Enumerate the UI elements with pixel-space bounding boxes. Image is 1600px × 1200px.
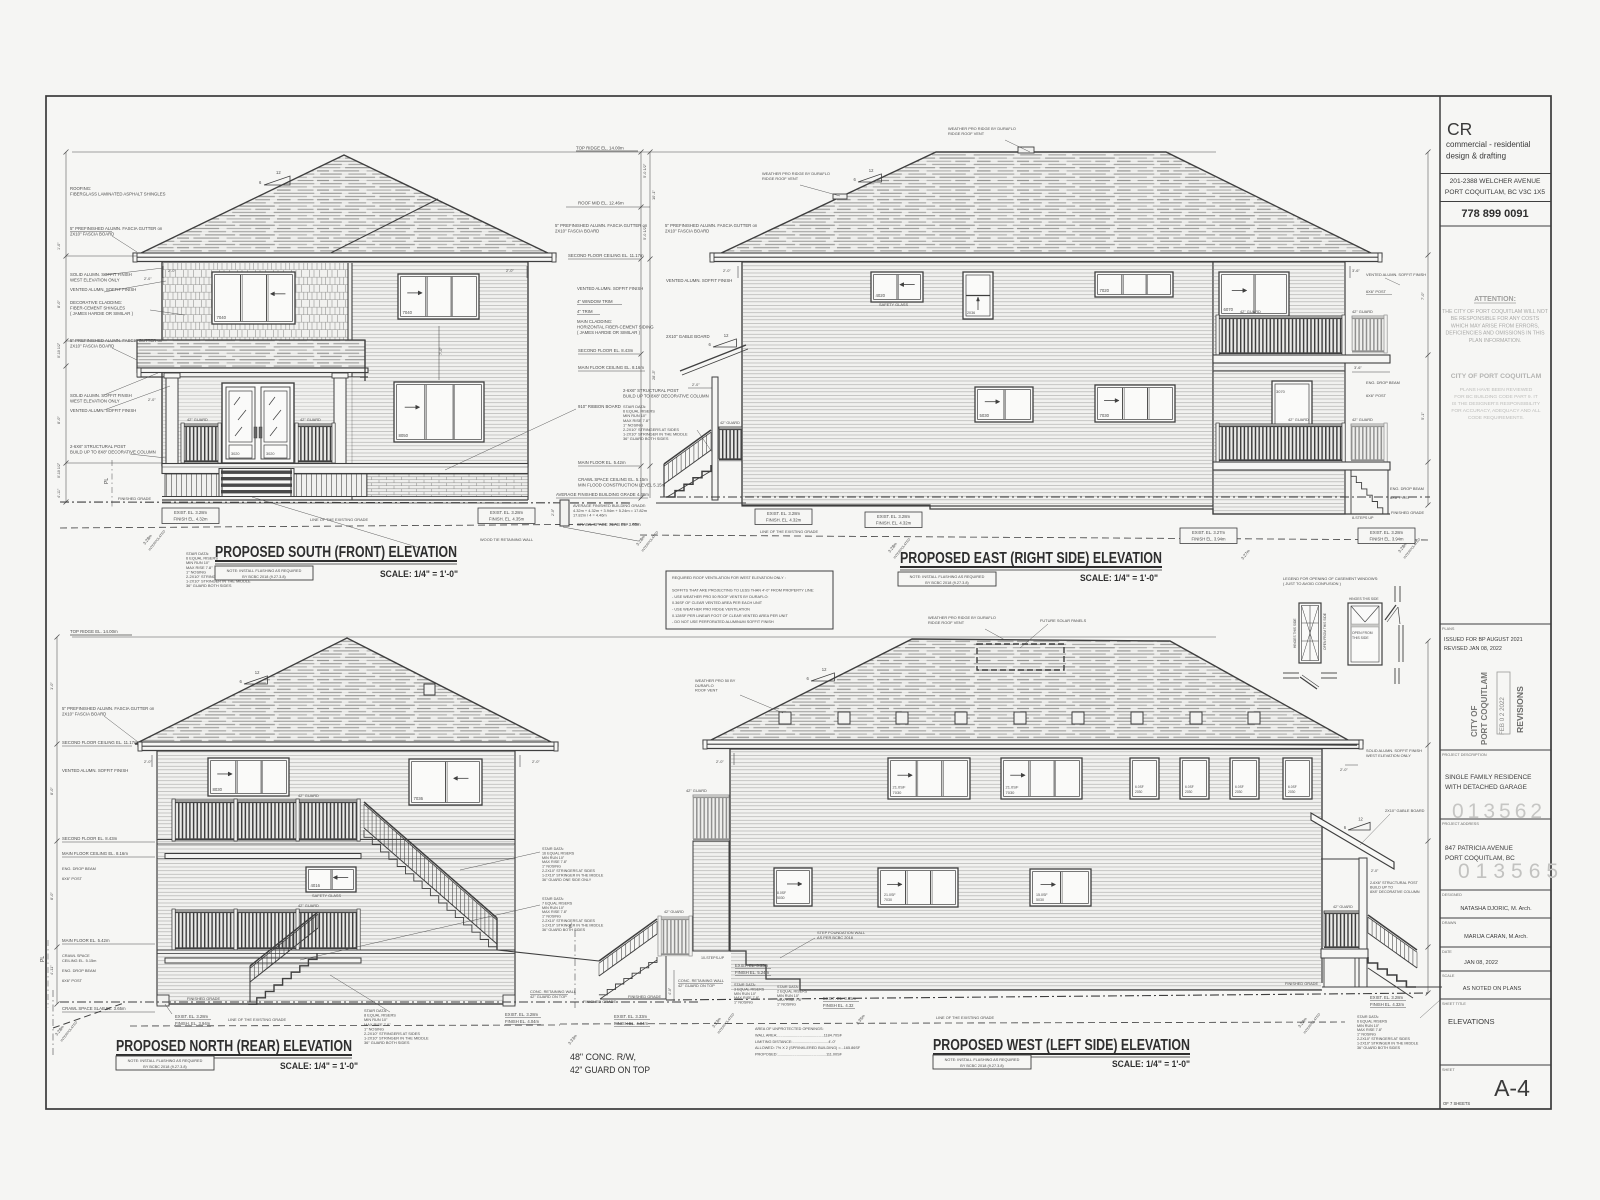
svg-text:PLANS HAVE BEEN REVIEWED: PLANS HAVE BEEN REVIEWED	[1460, 387, 1533, 393]
svg-text:REVISIONS: REVISIONS	[1515, 686, 1525, 733]
svg-text:17.82m / 4 = 4.46m: 17.82m / 4 = 4.46m	[573, 513, 607, 518]
svg-text:8050: 8050	[399, 433, 409, 438]
svg-text:NOTE: INSTALL FLASHING AS REQU: NOTE: INSTALL FLASHING AS REQUIRED	[227, 569, 302, 573]
svg-text:EXIST. EL. 3.28m: EXIST. EL. 3.28m	[767, 511, 801, 516]
svg-text:SCALE: 1/4" = 1'-0": SCALE: 1/4" = 1'-0"	[280, 1061, 358, 1072]
svg-text:FOR BC BUILDING CODE PART 9. I: FOR BC BUILDING CODE PART 9. IT	[1454, 394, 1537, 400]
svg-text:2'-0": 2'-0"	[1340, 767, 1348, 772]
svg-text:PROPOSED SOUTH (FRONT) ELEVATI: PROPOSED SOUTH (FRONT) ELEVATION	[215, 544, 457, 561]
svg-text:DECORATIVE CLADDING:: DECORATIVE CLADDING:	[70, 300, 122, 305]
svg-text:4" TRIM: 4" TRIM	[577, 309, 593, 314]
svg-text:EXIST. EL. 3.28m: EXIST. EL. 3.28m	[174, 510, 208, 515]
svg-text:WITH DETACHED GARAGE: WITH DETACHED GARAGE	[1445, 784, 1527, 791]
svg-text:OPEN FROM: OPEN FROM	[1352, 631, 1373, 635]
svg-text:36" GUARD BOTH SIDES: 36" GUARD BOTH SIDES	[1357, 1046, 1401, 1050]
svg-text:7030: 7030	[1100, 413, 1110, 418]
svg-text:FINISH. EL. 4.32m: FINISH. EL. 4.32m	[766, 518, 802, 523]
svg-text:EXIST. EL. 3.35m: EXIST. EL. 3.35m	[823, 996, 857, 1001]
svg-text:0'-10 1/2": 0'-10 1/2"	[57, 462, 61, 478]
svg-text:AVERAGE FINISHED BUILDING GRAD: AVERAGE FINISHED BUILDING GRADE 4.46m	[556, 492, 649, 497]
svg-text:2'-0": 2'-0"	[144, 759, 152, 764]
svg-text:42" GUARD: 42" GUARD	[1288, 417, 1309, 422]
svg-text:SECOND FLOOR CEILING EL. 11.17: SECOND FLOOR CEILING EL. 11.17m	[62, 740, 138, 745]
svg-text:FUTURE SOLAR PANELS: FUTURE SOLAR PANELS	[1040, 618, 1087, 623]
svg-text:36" GUARD ONE SIDE ONLY: 36" GUARD ONE SIDE ONLY	[542, 878, 592, 882]
svg-text:2-6X6" STRUCTURAL POST: 2-6X6" STRUCTURAL POST	[70, 444, 126, 449]
svg-text:5" PREFINISHED ALUMN. FASCIA G: 5" PREFINISHED ALUMN. FASCIA GUTTER on	[70, 226, 163, 231]
svg-text:VENTED ALUMN. SOFFIT FINISH: VENTED ALUMN. SOFFIT FINISH	[666, 278, 732, 283]
svg-text:28'-3": 28'-3"	[651, 369, 656, 380]
svg-text:7040: 7040	[217, 315, 227, 320]
svg-text:REVISED JAN 08, 2022: REVISED JAN 08, 2022	[1444, 646, 1502, 652]
svg-text:3'-6": 3'-6"	[1354, 365, 1362, 370]
svg-text:1-2X10" STRINGER IN THE MIDDLE: 1-2X10" STRINGER IN THE MIDDLE	[1357, 1041, 1419, 1045]
svg-text:2036: 2036	[967, 311, 975, 315]
svg-text:ELEVATIONS: ELEVATIONS	[1448, 1017, 1495, 1026]
svg-text:SAFETY GLASS: SAFETY GLASS	[879, 302, 909, 307]
svg-text:BUILD UP TO: BUILD UP TO	[1370, 886, 1393, 890]
svg-text:36" GUARD BOTH SIDES: 36" GUARD BOTH SIDES	[542, 928, 586, 932]
svg-text:3020: 3020	[231, 452, 239, 456]
svg-text:8X8" DECORATIVE COLUMN: 8X8" DECORATIVE COLUMN	[1370, 890, 1420, 894]
svg-text:AS NOTED ON PLANS: AS NOTED ON PLANS	[1463, 986, 1522, 992]
svg-text:WOOD TIE RETAINING WALL: WOOD TIE RETAINING WALL	[480, 537, 534, 542]
svg-text:910" RIBBON BOARD: 910" RIBBON BOARD	[578, 404, 621, 409]
svg-text:FINISH. EL. 4.32m: FINISH. EL. 4.32m	[876, 521, 912, 526]
svg-text:2'-0": 2'-0"	[148, 398, 156, 402]
svg-text:2'-0": 2'-0"	[532, 759, 540, 764]
svg-text:42" GUARD: 42" GUARD	[298, 793, 319, 798]
svg-text:FINISH. EL. 3.94m: FINISH. EL. 3.94m	[175, 1021, 211, 1026]
svg-text:7036: 7036	[414, 796, 424, 801]
svg-text:4'-0": 4'-0"	[668, 987, 672, 995]
svg-text:2'-0": 2'-0"	[692, 383, 700, 387]
svg-text:LINE OF THE EXISTING GRADE: LINE OF THE EXISTING GRADE	[310, 517, 368, 522]
svg-text:AS PER BCBC 2018: AS PER BCBC 2018	[817, 935, 853, 940]
svg-text:2'-0": 2'-0"	[716, 759, 724, 764]
svg-text:THIS SIDE: THIS SIDE	[1352, 636, 1369, 640]
svg-text:ALLOWED: 7% X 2 (SPRINKLERED B: ALLOWED: 7% X 2 (SPRINKLERED BUILDING) =…	[755, 1046, 861, 1050]
svg-text:DESIGNED: DESIGNED	[1442, 893, 1462, 897]
svg-text:42" GUARD: 42" GUARD	[1352, 309, 1373, 314]
svg-text:MAX RISE 7.8": MAX RISE 7.8"	[542, 910, 568, 914]
svg-text:DATE: DATE	[1442, 950, 1452, 954]
svg-text:15.0SF: 15.0SF	[1036, 893, 1048, 897]
svg-text:MIN RUN 10": MIN RUN 10"	[734, 992, 757, 996]
svg-text:12: 12	[869, 168, 874, 173]
svg-text:5'-0 1/2": 5'-0 1/2"	[642, 163, 647, 178]
svg-text:6.0SF: 6.0SF	[1185, 785, 1194, 789]
svg-text:42" GUARD ON TOP: 42" GUARD ON TOP	[570, 1065, 650, 1075]
svg-text:PROPOSED EAST (RIGHT SIDE) ELE: PROPOSED EAST (RIGHT SIDE) ELEVATION	[900, 550, 1162, 567]
svg-text:LINE OF THE EXISTING GRADE: LINE OF THE EXISTING GRADE	[228, 1017, 286, 1022]
svg-text:FINISHED GRADE: FINISHED GRADE	[187, 996, 220, 1001]
svg-text:2-2X10" STRINGERS AT SIDES: 2-2X10" STRINGERS AT SIDES	[1357, 1037, 1411, 1041]
svg-text:ENG. DROP BEAM: ENG. DROP BEAM	[62, 968, 96, 973]
svg-text:10-STEPS-UP: 10-STEPS-UP	[701, 956, 725, 960]
svg-text:1" NOSING: 1" NOSING	[542, 915, 561, 919]
svg-text:VENTED ALUMN. SOFFIT FINISH: VENTED ALUMN. SOFFIT FINISH	[577, 286, 643, 291]
svg-text:PLANS: PLANS	[1442, 627, 1455, 631]
svg-text:WEST ELEVATION ONLY: WEST ELEVATION ONLY	[70, 277, 120, 282]
svg-text:FINISH EL. 3.94m: FINISH EL. 3.94m	[1192, 537, 1226, 542]
svg-text:8-STEPS UP: 8-STEPS UP	[1352, 516, 1374, 520]
svg-text:MIN FLOOD CONSTRUCTION LEVEL 5: MIN FLOOD CONSTRUCTION LEVEL 5.15m	[578, 482, 666, 487]
svg-text:- USE WEATHER PRO RIDGE VENT: - USE WEATHER PRO RIDGE VENTILATION	[672, 608, 750, 612]
svg-text:013565: 013565	[1458, 860, 1564, 883]
svg-text:CEILING EL. 5.15m: CEILING EL. 5.15m	[62, 958, 96, 963]
svg-text:ENG. DROP BEAM: ENG. DROP BEAM	[1366, 380, 1400, 385]
svg-text:- DO NOT USE PERFORATED ALUM: - DO NOT USE PERFORATED ALUMINUM SOFFIT …	[672, 620, 774, 624]
svg-text:2'-0": 2'-0"	[506, 268, 514, 273]
svg-text:HORIZONTAL FIBER-CEMENT SIDING: HORIZONTAL FIBER-CEMENT SIDING	[577, 324, 654, 329]
svg-text:EXIST. EL. 3.33m: EXIST. EL. 3.33m	[735, 963, 769, 968]
svg-text:42" GUARD: 42" GUARD	[298, 903, 319, 908]
svg-text:FINISH EL. 4.32m: FINISH EL. 4.32m	[174, 517, 208, 522]
svg-text:6 EQUAL RISERS: 6 EQUAL RISERS	[1357, 1019, 1388, 1023]
svg-text:CODE REQUIREMENTS.: CODE REQUIREMENTS.	[1468, 415, 1524, 421]
svg-text:CRAWL SPACE SLAB EL. 3.65m: CRAWL SPACE SLAB EL. 3.65m	[62, 1006, 126, 1011]
svg-text:2-6X6" STRUCTURAL POST: 2-6X6" STRUCTURAL POST	[1370, 881, 1419, 885]
svg-text:PL: PL	[568, 922, 573, 928]
svg-text:21.0SF: 21.0SF	[893, 785, 906, 790]
svg-text:8'-0": 8'-0"	[49, 787, 54, 795]
svg-text:CITY OF PORT COQUITLAM: CITY OF PORT COQUITLAM	[1451, 373, 1542, 380]
svg-text:12: 12	[276, 170, 281, 175]
svg-text:36" GUARD BOTH SIDES: 36" GUARD BOTH SIDES	[186, 583, 232, 588]
svg-text:SHEET: SHEET	[1442, 1068, 1455, 1072]
svg-text:2030: 2030	[1185, 790, 1193, 794]
svg-text:DRAWN: DRAWN	[1442, 921, 1456, 925]
svg-text:EXIST. EL. 3.33m: EXIST. EL. 3.33m	[614, 1014, 648, 1019]
svg-text:FINISHED GRADE: FINISHED GRADE	[118, 496, 151, 501]
svg-text:4020: 4020	[876, 293, 886, 298]
svg-text:2'-0": 2'-0"	[723, 268, 731, 273]
svg-text:WEST ELEVATION ONLY: WEST ELEVATION ONLY	[1366, 753, 1411, 758]
svg-text:5" PREFINISHED ALUMN. FASCIA G: 5" PREFINISHED ALUMN. FASCIA GUTTER on	[70, 338, 163, 343]
svg-text:778 899 0091: 778 899 0091	[1461, 208, 1528, 220]
svg-text:2030: 2030	[1288, 790, 1296, 794]
svg-text:IS THE DESIGNER'S RESPONSIBILI: IS THE DESIGNER'S RESPONSIBILITY	[1452, 401, 1541, 407]
svg-text:MAIN FLOOR CEILING EL. 8.16m: MAIN FLOOR CEILING EL. 8.16m	[578, 365, 644, 370]
svg-text:42" GUARD: 42" GUARD	[720, 421, 740, 425]
svg-text:7040: 7040	[403, 310, 413, 315]
svg-text:MAX RISE 7.8": MAX RISE 7.8"	[777, 998, 803, 1002]
svg-text:2X10" FASCIA BOARD: 2X10" FASCIA BOARD	[665, 228, 709, 233]
svg-text:THE CITY OF PORT COQUITLAM WIL: THE CITY OF PORT COQUITLAM WILL NOT	[1442, 309, 1549, 315]
svg-text:2 EQUAL RISERS: 2 EQUAL RISERS	[777, 989, 808, 993]
svg-text:EXIST. EL. 3.28m: EXIST. EL. 3.28m	[1370, 530, 1404, 535]
svg-text:FINISHED GRADE: FINISHED GRADE	[628, 994, 661, 999]
svg-text:SCALE: 1/4" = 1'-0": SCALE: 1/4" = 1'-0"	[380, 569, 458, 580]
svg-text:PLAN INFORMATION.: PLAN INFORMATION.	[1469, 338, 1521, 344]
svg-text:SCALE: 1/4" = 1'-0": SCALE: 1/4" = 1'-0"	[1112, 1059, 1190, 1070]
svg-text:MIN RUN 10": MIN RUN 10"	[542, 906, 565, 910]
svg-text:4016: 4016	[311, 883, 321, 888]
svg-text:42" GUARD: 42" GUARD	[300, 417, 321, 422]
svg-text:3020: 3020	[266, 452, 274, 456]
svg-text:3070: 3070	[1276, 389, 1286, 394]
svg-text:RIDGE ROOF VENT: RIDGE ROOF VENT	[948, 131, 985, 136]
svg-text:VENTED ALUMN. SOFFIT FINISH: VENTED ALUMN. SOFFIT FINISH	[70, 408, 136, 413]
svg-text:VENTED ALUMN. SOFFIT FINISH: VENTED ALUMN. SOFFIT FINISH	[70, 287, 136, 292]
svg-text:FINISHED GRADE: FINISHED GRADE	[1391, 510, 1424, 515]
svg-text:2030: 2030	[1235, 790, 1243, 794]
svg-text:NOTE: INSTALL FLASHING AS REQU: NOTE: INSTALL FLASHING AS REQUIRED	[945, 1058, 1020, 1062]
svg-text:ENG. DROP BEAM: ENG. DROP BEAM	[1390, 486, 1424, 491]
svg-text:6X6" POST: 6X6" POST	[1366, 393, 1387, 398]
svg-text:0'-10 1/2": 0'-10 1/2"	[57, 342, 61, 358]
svg-text:ROOFING:: ROOFING:	[70, 186, 91, 191]
svg-text:AREA OF UNPROTECTED OPENINGS:: AREA OF UNPROTECTED OPENINGS:	[755, 1027, 824, 1031]
svg-text:MAX RISE 7.8": MAX RISE 7.8"	[542, 860, 568, 864]
svg-text:A-4: A-4	[1494, 1075, 1530, 1101]
svg-text:7030: 7030	[1006, 790, 1016, 795]
svg-text:6X6" POST: 6X6" POST	[62, 876, 83, 881]
svg-text:MAIN FLOOR EL. 5.42m: MAIN FLOOR EL. 5.42m	[62, 938, 110, 943]
svg-text:NOTE: INSTALL FLASHING AS REQU: NOTE: INSTALL FLASHING AS REQUIRED	[128, 1059, 203, 1063]
svg-text:5030: 5030	[980, 413, 990, 418]
svg-text:2030: 2030	[1135, 790, 1143, 794]
svg-text:6X6" POST: 6X6" POST	[62, 978, 83, 983]
svg-text:SOLID ALUMN. SOFFIT FINISH: SOLID ALUMN. SOFFIT FINISH	[70, 393, 132, 398]
svg-text:12: 12	[822, 667, 827, 672]
svg-text:- USE WEATHER PRO 50 ROOF VE: - USE WEATHER PRO 50 ROOF VENTS BY DURAF…	[672, 595, 769, 599]
svg-text:FIBER-CEMENT SHINGLES: FIBER-CEMENT SHINGLES	[70, 305, 125, 310]
svg-text:STAIR DATA:: STAIR DATA:	[734, 983, 756, 987]
svg-text:PORT COQUITLAM: PORT COQUITLAM	[1480, 672, 1489, 745]
svg-text:10'-1": 10'-1"	[651, 189, 656, 200]
svg-text:21.0SF: 21.0SF	[1006, 785, 1019, 790]
svg-text:ROOF VENT: ROOF VENT	[695, 688, 718, 693]
svg-text:12: 12	[255, 670, 260, 675]
svg-text:42" GUARD: 42" GUARD	[187, 417, 208, 422]
svg-text:2'-0": 2'-0"	[551, 508, 555, 516]
svg-text:STAIR DATA:: STAIR DATA:	[542, 897, 564, 901]
svg-text:2X10" GABLE BOARD: 2X10" GABLE BOARD	[1385, 808, 1425, 813]
svg-text:42" GUARD: 42" GUARD	[686, 788, 707, 793]
svg-text:NOTE: INSTALL FLASHING AS REQU: NOTE: INSTALL FLASHING AS REQUIRED	[910, 575, 985, 579]
svg-text:42" GUARD: 42" GUARD	[1240, 309, 1261, 314]
svg-text:SCALE: 1/4" = 1'-0": SCALE: 1/4" = 1'-0"	[1080, 573, 1158, 584]
svg-text:EXIST. EL. 3.27m: EXIST. EL. 3.27m	[1192, 530, 1226, 535]
svg-text:2'-0": 2'-0"	[144, 277, 152, 281]
svg-text:PROJECT ADDRESS: PROJECT ADDRESS	[1442, 822, 1479, 826]
svg-text:8'-0": 8'-0"	[56, 416, 61, 424]
svg-text:STAIR DATA:: STAIR DATA:	[1357, 1015, 1379, 1019]
svg-text:1" NOSING: 1" NOSING	[1357, 1033, 1376, 1037]
svg-text:NATASHA DJORIC, M. Arch.: NATASHA DJORIC, M. Arch.	[1460, 906, 1532, 912]
svg-text:013562: 013562	[1452, 800, 1546, 823]
svg-text:BY BCBC 2018 (9.27.3.8): BY BCBC 2018 (9.27.3.8)	[925, 581, 969, 585]
svg-text:CRAWL SPACE SLAB EL. 3.65m: CRAWL SPACE SLAB EL. 3.65m	[577, 522, 641, 527]
svg-text:8'-0": 8'-0"	[56, 300, 61, 308]
svg-text:FIBERGLASS LAMINATED ASPHALT S: FIBERGLASS LAMINATED ASPHALT SHINGLES	[70, 191, 166, 196]
svg-text:2-2X10" STRINGERS AT SIDES: 2-2X10" STRINGERS AT SIDES	[542, 869, 596, 873]
svg-text:12: 12	[724, 333, 729, 338]
svg-text:MARIJA CARAN, M.Arch.: MARIJA CARAN, M.Arch.	[1464, 934, 1528, 940]
svg-text:MAX RISE 7.8": MAX RISE 7.8"	[734, 996, 760, 1000]
svg-text:ATTENTION:: ATTENTION:	[1474, 296, 1516, 303]
svg-text:4'-11": 4'-11"	[57, 488, 61, 498]
svg-text:6.0SF: 6.0SF	[1135, 785, 1144, 789]
svg-text:DEFICIENCIES AND OMISSIONS IN: DEFICIENCIES AND OMISSIONS IN THIS	[1445, 331, 1545, 337]
svg-text:PL: PL	[40, 956, 46, 962]
svg-text:SECOND FLOOR EL. 8.43m: SECOND FLOOR EL. 8.43m	[578, 348, 634, 353]
svg-text:1'-0": 1'-0"	[49, 682, 54, 690]
svg-text:commercial - residential: commercial - residential	[1446, 140, 1531, 149]
svg-text:MIN RUN 10": MIN RUN 10"	[1357, 1024, 1380, 1028]
svg-text:PROPOSED WEST (LEFT SIDE) ELEV: PROPOSED WEST (LEFT SIDE) ELEVATION	[933, 1037, 1190, 1054]
svg-text:3'-6": 3'-6"	[1352, 268, 1360, 273]
svg-text:847 PATRICIA AVENUE: 847 PATRICIA AVENUE	[1445, 845, 1513, 852]
svg-text:PROJECT DESCRIPTION: PROJECT DESCRIPTION	[1442, 753, 1487, 757]
svg-text:EXIST. EL. 3.28m: EXIST. EL. 3.28m	[877, 514, 911, 519]
svg-text:1" NOSING: 1" NOSING	[542, 865, 561, 869]
svg-text:FINISH EL. 4.32m: FINISH EL. 4.32m	[1370, 1002, 1404, 1007]
svg-text:201-2388 WELCHER AVENUE: 201-2388 WELCHER AVENUE	[1450, 178, 1541, 185]
svg-text:EXIST. EL. 3.28m: EXIST. EL. 3.28m	[490, 510, 524, 515]
svg-text:1" NOSING: 1" NOSING	[777, 1003, 796, 1007]
svg-text:2'-0": 2'-0"	[1371, 869, 1379, 873]
svg-text:8.0SF: 8.0SF	[777, 891, 786, 895]
svg-text:7030: 7030	[893, 790, 903, 795]
svg-text:TOP RIDGE EL. 14.00m: TOP RIDGE EL. 14.00m	[70, 629, 118, 634]
svg-text:8030: 8030	[213, 787, 223, 792]
svg-text:5" PREFINISHED ALUMN. FASCIA G: 5" PREFINISHED ALUMN. FASCIA GUTTER on	[665, 223, 758, 228]
svg-text:6.0SF: 6.0SF	[1235, 785, 1244, 789]
svg-text:BUILD UP TO 8X8" DECORATIVE CO: BUILD UP TO 8X8" DECORATIVE COLUMN	[70, 449, 156, 454]
svg-text:JAN 08, 2022: JAN 08, 2022	[1464, 960, 1498, 966]
svg-text:2X10" FASCIA BOARD: 2X10" FASCIA BOARD	[62, 711, 106, 716]
svg-text:4" WINDOW TRIM: 4" WINDOW TRIM	[577, 299, 613, 304]
svg-text:7030: 7030	[884, 898, 892, 902]
svg-text:( JAMES HARDIE OR SIMILAR ): ( JAMES HARDIE OR SIMILAR )	[577, 330, 641, 335]
svg-text:2'-0": 2'-0"	[168, 268, 176, 273]
svg-text:BY BCBC 2018 (9.27.3.8): BY BCBC 2018 (9.27.3.8)	[960, 1064, 1004, 1068]
svg-text:36" GUARD BOTH SIDES: 36" GUARD BOTH SIDES	[623, 436, 669, 441]
svg-text:7020: 7020	[1100, 288, 1110, 293]
svg-text:ENG. DROP BEAM: ENG. DROP BEAM	[62, 866, 96, 871]
svg-text:VENTED ALUMN. SOFFIT FINISH: VENTED ALUMN. SOFFIT FINISH	[62, 768, 128, 773]
svg-text:REQUIRED ROOF VENTILATION FOR: REQUIRED ROOF VENTILATION FOR WEST ELEVA…	[672, 576, 786, 580]
svg-text:CR: CR	[1447, 119, 1472, 139]
svg-text:SOFFITS THAT ARE PROJECTING TO: SOFFITS THAT ARE PROJECTING TO LESS THAN…	[672, 589, 814, 593]
svg-text:FINISH. EL. 4.35m: FINISH. EL. 4.35m	[489, 517, 525, 522]
svg-text:42" GUARD: 42" GUARD	[1333, 905, 1353, 909]
svg-text:PL: PL	[104, 478, 110, 484]
svg-text:BY BCBC 2018 (9.27.3.8): BY BCBC 2018 (9.27.3.8)	[143, 1065, 187, 1069]
svg-text:5" PREFINISHED ALUMN. FASCIA G: 5" PREFINISHED ALUMN. FASCIA GUTTER on	[555, 223, 648, 228]
svg-text:2X10" FASCIA BOARD: 2X10" FASCIA BOARD	[555, 228, 599, 233]
svg-text:BE RESPONSIBLE FOR ANY COSTS: BE RESPONSIBLE FOR ANY COSTS	[1451, 316, 1540, 322]
svg-text:HINGES THIS SIDE: HINGES THIS SIDE	[1349, 597, 1379, 601]
svg-text:8'-0": 8'-0"	[49, 892, 54, 900]
svg-text:2-6X6" STRUCTURAL POST: 2-6X6" STRUCTURAL POST	[623, 388, 679, 393]
svg-text:RIDGE ROOF VENT: RIDGE ROOF VENT	[928, 620, 965, 625]
svg-text:CRAWL SPACE CEILING EL. 5.15m: CRAWL SPACE CEILING EL. 5.15m	[578, 477, 648, 482]
svg-text:12: 12	[1358, 817, 1363, 822]
svg-text:MIN RUN 10": MIN RUN 10"	[777, 994, 800, 998]
svg-text:LINE OF THE EXISTING GRADE: LINE OF THE EXISTING GRADE	[936, 1015, 994, 1020]
svg-text:2X10" GABLE BOARD: 2X10" GABLE BOARD	[666, 334, 710, 339]
svg-text:1" NOSING: 1" NOSING	[734, 1001, 753, 1005]
svg-text:SECOND FLOOR EL. 8.43m: SECOND FLOOR EL. 8.43m	[62, 836, 118, 841]
svg-text:3 EQUAL RISERS: 3 EQUAL RISERS	[734, 987, 765, 991]
svg-text:5030: 5030	[777, 896, 785, 900]
svg-text:EXIST. EL. 3.28m: EXIST. EL. 3.28m	[505, 1012, 539, 1017]
svg-text:2X10" FASCIA BOARD: 2X10" FASCIA BOARD	[70, 231, 114, 236]
svg-text:PROPOSED NORTH (REAR) ELEVATIO: PROPOSED NORTH (REAR) ELEVATION	[116, 1038, 352, 1055]
svg-text:design & drafting: design & drafting	[1446, 152, 1506, 161]
svg-text:1'-0": 1'-0"	[57, 242, 61, 250]
svg-text:7'-0": 7'-0"	[1420, 292, 1425, 300]
svg-text:PROPOSED:.....................: PROPOSED:...............................…	[755, 1053, 843, 1057]
svg-text:STAIR DATA:: STAIR DATA:	[777, 985, 799, 989]
svg-text:MAX RISE 7.8": MAX RISE 7.8"	[1357, 1028, 1383, 1032]
svg-text:SAFETY GLASS: SAFETY GLASS	[312, 893, 342, 898]
svg-text:EXIST. EL. 3.28m: EXIST. EL. 3.28m	[1370, 995, 1404, 1000]
svg-text:LINE OF THE EXISTING GRADE: LINE OF THE EXISTING GRADE	[760, 529, 818, 534]
svg-text:21.0SF: 21.0SF	[884, 893, 896, 897]
svg-text:VENTED ALUMN. SOFFIT FINISH: VENTED ALUMN. SOFFIT FINISH	[1366, 272, 1426, 277]
svg-text:0.128SF PER LINEAR FOOT OF CLE: 0.128SF PER LINEAR FOOT OF CLEAR VENTED …	[672, 614, 788, 618]
svg-text:TOP RIDGE EL. 14.00m: TOP RIDGE EL. 14.00m	[576, 146, 624, 151]
svg-text:ROOF MID EL. 12.46m: ROOF MID EL. 12.46m	[578, 201, 624, 206]
svg-text:MAIN FLOOR CEILING EL. 8.16m: MAIN FLOOR CEILING EL. 8.16m	[62, 851, 128, 856]
svg-text:HINGES THIS SIDE: HINGES THIS SIDE	[1293, 618, 1297, 648]
svg-text:4'-11": 4'-11"	[49, 965, 54, 975]
svg-text:FOR ACCURACY, ADEQUACY AND ALL: FOR ACCURACY, ADEQUACY AND ALL	[1451, 408, 1541, 414]
svg-text:LIMITING DISTANCE:............: LIMITING DISTANCE:......................…	[755, 1040, 837, 1044]
svg-text:2X10" FASCIA BOARD: 2X10" FASCIA BOARD	[70, 343, 114, 348]
svg-text:SCALE: SCALE	[1442, 974, 1455, 978]
svg-text:SHEET TITLE: SHEET TITLE	[1442, 1002, 1466, 1006]
svg-text:BY BCBC 2018 (9.27.3.8): BY BCBC 2018 (9.27.3.8)	[242, 575, 286, 579]
svg-text:FINISHED GRADE: FINISHED GRADE	[583, 999, 616, 1004]
svg-text:SINGLE FAMILY RESIDENCE: SINGLE FAMILY RESIDENCE	[1445, 774, 1531, 781]
svg-text:0.36SF OF CLEAR VENTED AREA PE: 0.36SF OF CLEAR VENTED AREA PER EACH UNI…	[672, 601, 763, 605]
svg-text:WALL AREA:....................: WALL AREA:..............................…	[755, 1033, 843, 1037]
svg-text:6X6" POST: 6X6" POST	[1366, 289, 1387, 294]
svg-text:OF 7 SHEETS: OF 7 SHEETS	[1443, 1101, 1470, 1106]
svg-text:WHICH MAY ARISE FROM ERRORS,: WHICH MAY ARISE FROM ERRORS,	[1451, 323, 1539, 329]
svg-text:RIDGE ROOF VENT: RIDGE ROOF VENT	[762, 176, 799, 181]
svg-text:WEST ELEVATION ONLY: WEST ELEVATION ONLY	[70, 398, 120, 403]
svg-text:1-2X10" STRINGER IN THE MIDDLE: 1-2X10" STRINGER IN THE MIDDLE	[542, 873, 604, 877]
svg-text:7 EQUAL RISERS: 7 EQUAL RISERS	[542, 901, 573, 905]
svg-text:OPEN FROM THIS SIDE: OPEN FROM THIS SIDE	[1323, 612, 1327, 650]
svg-text:STAIR DATA:: STAIR DATA:	[542, 847, 564, 851]
svg-text:36" GUARD BOTH SIDES: 36" GUARD BOTH SIDES	[364, 1040, 410, 1045]
svg-text:BUILD UP TO 8X8" DECORATIVE CO: BUILD UP TO 8X8" DECORATIVE COLUMN	[623, 393, 709, 398]
svg-text:( JAMES HARDIE OR SIMILAR ): ( JAMES HARDIE OR SIMILAR )	[70, 311, 134, 316]
svg-text:5030: 5030	[1036, 898, 1044, 902]
svg-text:PORT COQUITLAM, BC V3C 1X5: PORT COQUITLAM, BC V3C 1X5	[1445, 189, 1545, 196]
svg-text:6070: 6070	[1224, 307, 1234, 312]
svg-text:16 EQUAL RISERS: 16 EQUAL RISERS	[542, 851, 575, 855]
svg-text:EXIST. EL. 3.28m: EXIST. EL. 3.28m	[175, 1014, 209, 1019]
svg-text:5'-1": 5'-1"	[1420, 412, 1425, 420]
svg-text:MAIN CLADDING:: MAIN CLADDING:	[577, 319, 612, 324]
svg-text:FEB 0 2 2022: FEB 0 2 2022	[1499, 697, 1506, 735]
svg-text:FINISH EL. 3.94m: FINISH EL. 3.94m	[1370, 537, 1404, 542]
svg-text:FINISHED GRADE: FINISHED GRADE	[1285, 981, 1318, 986]
svg-text:( JUST TO AVOID CONFUSION ): ( JUST TO AVOID CONFUSION )	[1283, 581, 1342, 586]
svg-text:42" GUARD: 42" GUARD	[664, 910, 684, 914]
svg-text:MAIN FLOOR EL. 5.42m: MAIN FLOOR EL. 5.42m	[578, 460, 626, 465]
svg-text:CITY OF: CITY OF	[1470, 705, 1479, 737]
